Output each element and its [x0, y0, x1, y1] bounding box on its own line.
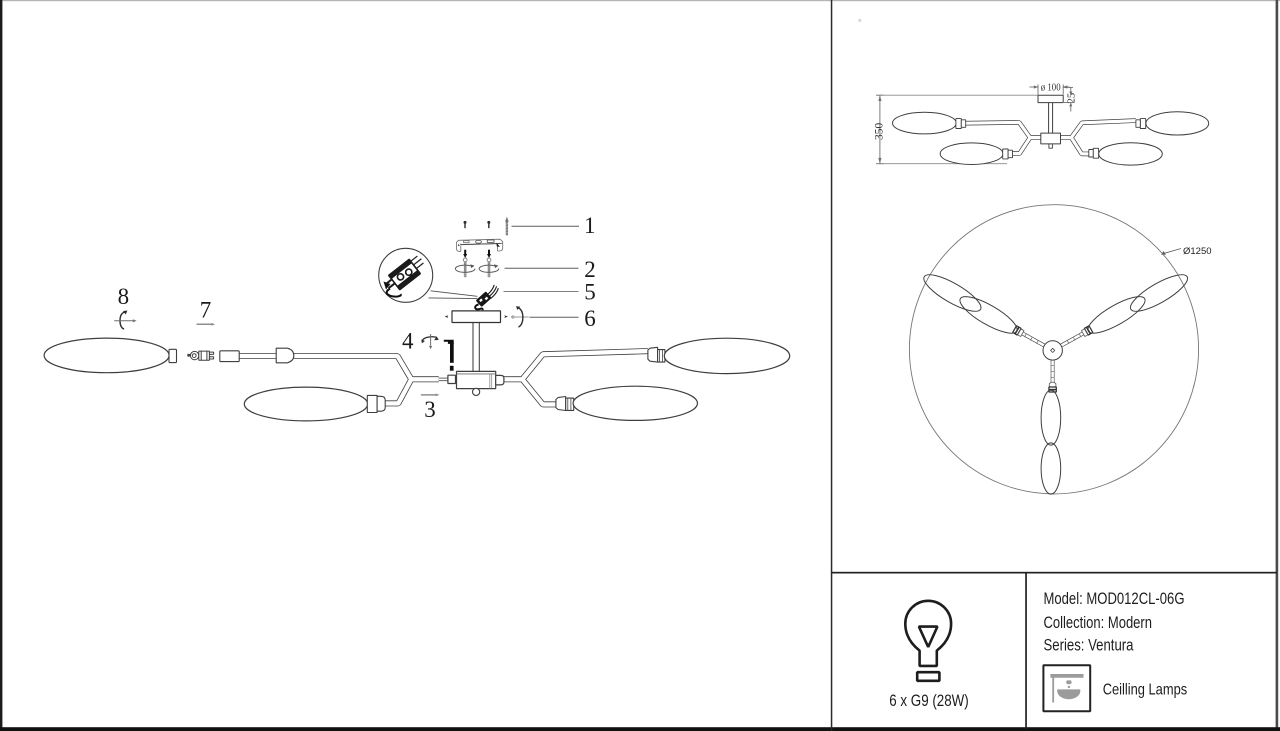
svg-text:Model: MOD012CL-06G: Model: MOD012CL-06G	[1044, 589, 1185, 608]
svg-text:2: 2	[584, 257, 596, 282]
svg-text:4: 4	[402, 328, 414, 353]
svg-text:7: 7	[200, 298, 212, 323]
svg-text:Ceilling Lamps: Ceilling Lamps	[1103, 682, 1188, 699]
svg-text:6 x G9 (28W): 6 x G9 (28W)	[889, 691, 969, 710]
svg-text:Ø1250: Ø1250	[1183, 246, 1212, 257]
svg-text:ø 100: ø 100	[1041, 82, 1061, 94]
svg-text:6: 6	[584, 306, 596, 331]
svg-text:5: 5	[584, 280, 596, 305]
svg-text:25: 25	[1066, 93, 1077, 104]
svg-text:1: 1	[584, 213, 596, 238]
svg-text:350: 350	[874, 123, 886, 141]
svg-text:8: 8	[118, 284, 130, 309]
svg-text:3: 3	[424, 397, 436, 422]
svg-text:Series: Ventura: Series: Ventura	[1044, 635, 1134, 654]
svg-text:Collection: Modern: Collection: Modern	[1044, 613, 1153, 632]
